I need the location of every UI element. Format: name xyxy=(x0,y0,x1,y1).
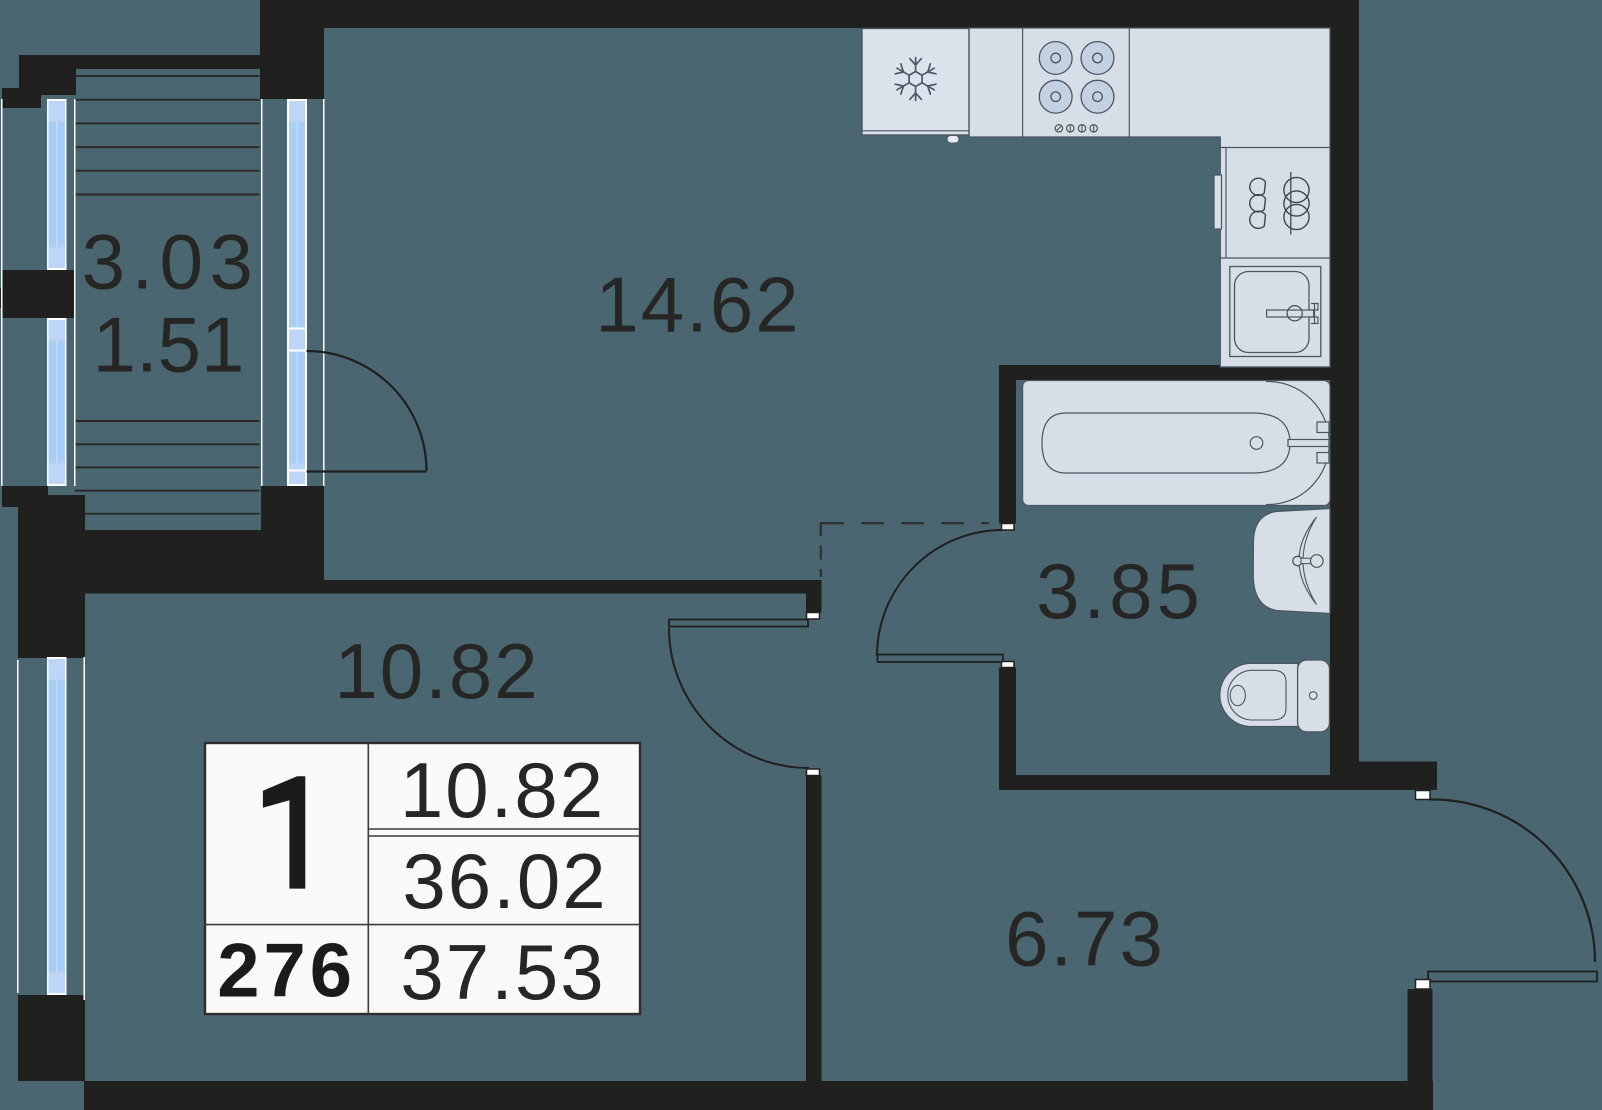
svg-text:36.02: 36.02 xyxy=(402,837,607,925)
svg-text:1.51: 1.51 xyxy=(93,301,245,389)
svg-text:3.85: 3.85 xyxy=(1036,547,1204,635)
svg-text:14.62: 14.62 xyxy=(595,261,800,349)
svg-text:6.73: 6.73 xyxy=(1005,895,1165,983)
svg-text:10.82: 10.82 xyxy=(400,746,605,834)
svg-text:3.03: 3.03 xyxy=(82,218,260,306)
svg-text:37.53: 37.53 xyxy=(400,928,605,1016)
svg-text:10.82: 10.82 xyxy=(334,627,539,715)
svg-text:276: 276 xyxy=(217,929,356,1014)
